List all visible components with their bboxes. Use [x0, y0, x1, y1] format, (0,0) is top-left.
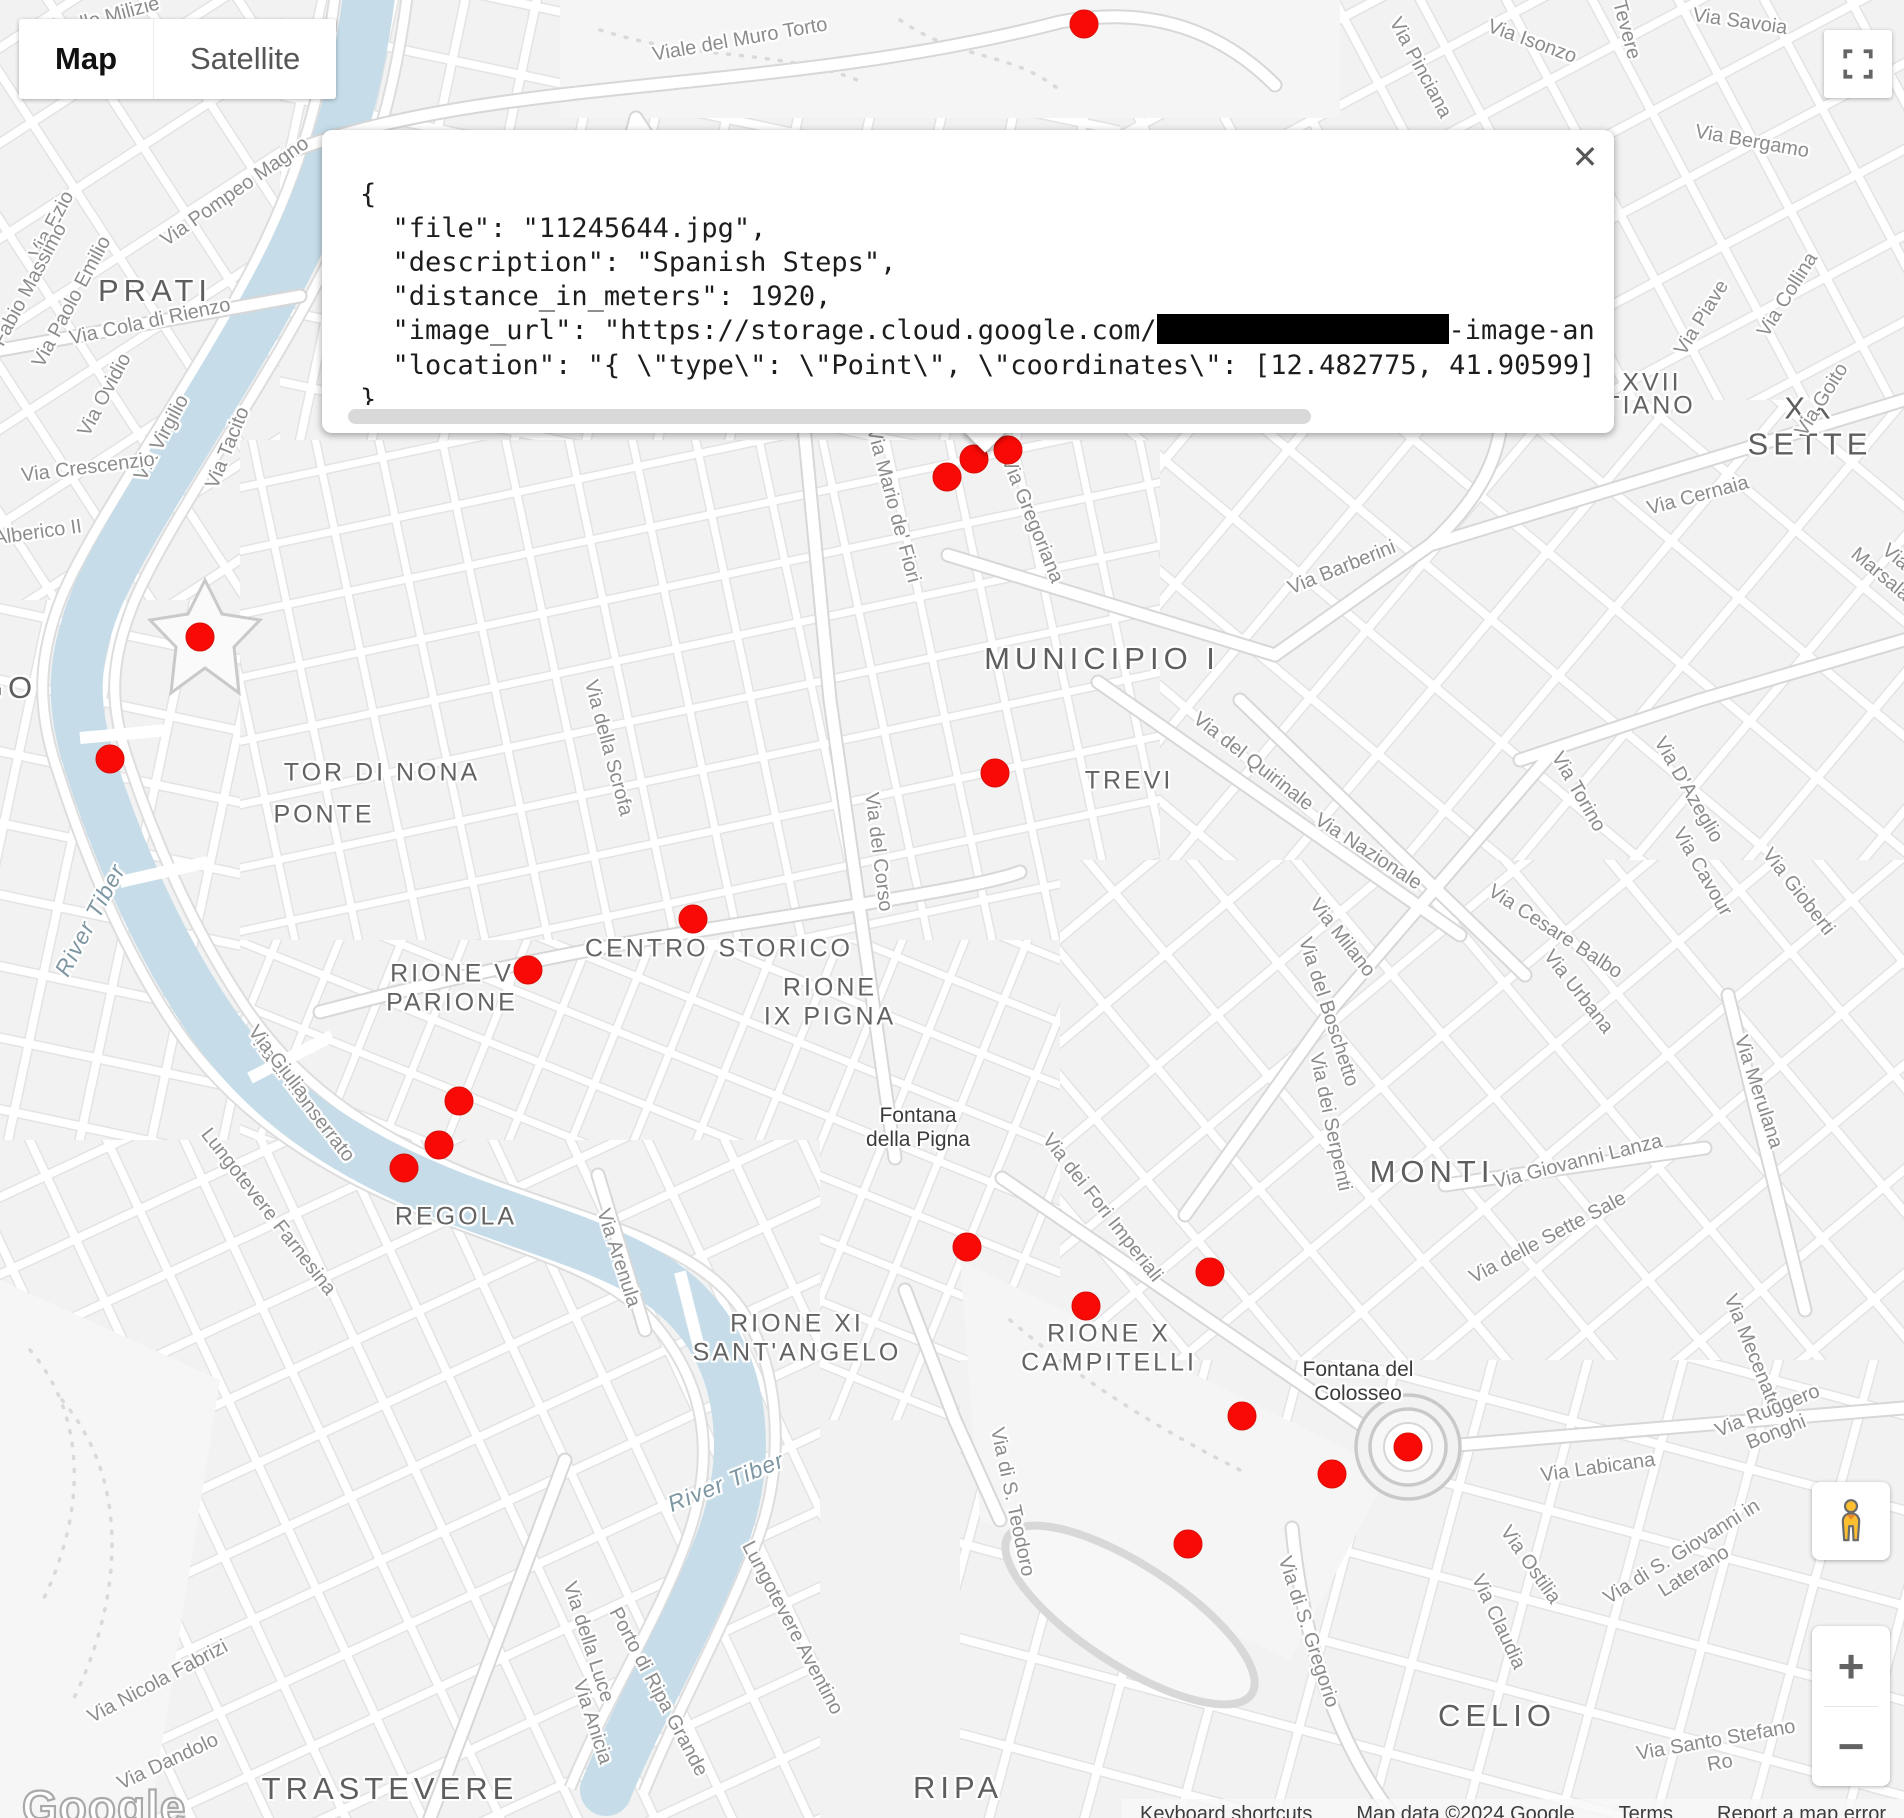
- fullscreen-icon: [1841, 47, 1875, 81]
- map-canvas[interactable]: PRATIMUNICIPIO IMONTICELIOTRASTEVERERIPA…: [0, 0, 1904, 1818]
- map-marker[interactable]: [390, 1154, 419, 1183]
- map-marker[interactable]: [1072, 1292, 1101, 1321]
- json-line: }: [360, 383, 1598, 405]
- satellite-button[interactable]: Satellite: [153, 19, 336, 99]
- map-marker[interactable]: [1174, 1530, 1203, 1559]
- zoom-out-button[interactable]: −: [1812, 1707, 1890, 1787]
- pegman-button[interactable]: [1812, 1482, 1890, 1560]
- zoom-in-button[interactable]: +: [1812, 1626, 1890, 1706]
- map-data-attribution: Map data ©2024 Google: [1356, 1803, 1574, 1818]
- report-error-link[interactable]: Report a map error: [1717, 1803, 1886, 1818]
- map-marker[interactable]: [1228, 1402, 1257, 1431]
- map-marker[interactable]: [1196, 1258, 1225, 1287]
- keyboard-shortcuts-button[interactable]: Keyboard shortcuts: [1140, 1803, 1312, 1818]
- json-line: "distance_in_meters": 1920,: [360, 280, 1598, 314]
- zoom-control: + −: [1812, 1626, 1890, 1786]
- google-logo[interactable]: Google: [22, 1780, 186, 1818]
- map-button[interactable]: Map: [19, 19, 153, 99]
- redaction-box: [1157, 314, 1449, 344]
- attribution-bar: Keyboard shortcuts Map data ©2024 Google…: [1122, 1799, 1904, 1818]
- info-window: ✕ { "file": "11245644.jpg", "description…: [322, 130, 1614, 433]
- map-marker[interactable]: [186, 623, 215, 652]
- map-marker[interactable]: [514, 956, 543, 985]
- horizontal-scrollbar-thumb[interactable]: [348, 409, 1311, 424]
- json-line: "description": "Spanish Steps",: [360, 246, 1598, 280]
- fullscreen-button[interactable]: [1824, 30, 1892, 98]
- map-marker[interactable]: [679, 905, 708, 934]
- map-marker[interactable]: [96, 745, 125, 774]
- map-type-control: Map Satellite: [19, 19, 336, 99]
- map-marker[interactable]: [445, 1087, 474, 1116]
- json-line: {: [360, 178, 1598, 212]
- map-marker[interactable]: [1070, 10, 1099, 39]
- json-line: "image_url": "https://storage.cloud.goog…: [360, 314, 1598, 349]
- map-marker[interactable]: [933, 463, 962, 492]
- image-url-suffix: -image-an: [1449, 315, 1595, 346]
- map-marker[interactable]: [981, 759, 1010, 788]
- image-url-prefix: "image_url": "https://storage.cloud.goog…: [360, 315, 1157, 346]
- json-line: "file": "11245644.jpg",: [360, 212, 1598, 246]
- map-marker[interactable]: [994, 436, 1023, 465]
- map-marker[interactable]: [425, 1131, 454, 1160]
- map-marker[interactable]: [1318, 1460, 1347, 1489]
- json-line: "location": "{ \"type\": \"Point\", \"co…: [360, 349, 1598, 383]
- terms-link[interactable]: Terms: [1619, 1803, 1673, 1818]
- map-marker[interactable]: [1394, 1433, 1423, 1462]
- map-marker[interactable]: [953, 1233, 982, 1262]
- info-window-json[interactable]: { "file": "11245644.jpg", "description":…: [360, 178, 1598, 405]
- close-icon[interactable]: ✕: [1564, 136, 1606, 178]
- pegman-icon: [1827, 1497, 1875, 1545]
